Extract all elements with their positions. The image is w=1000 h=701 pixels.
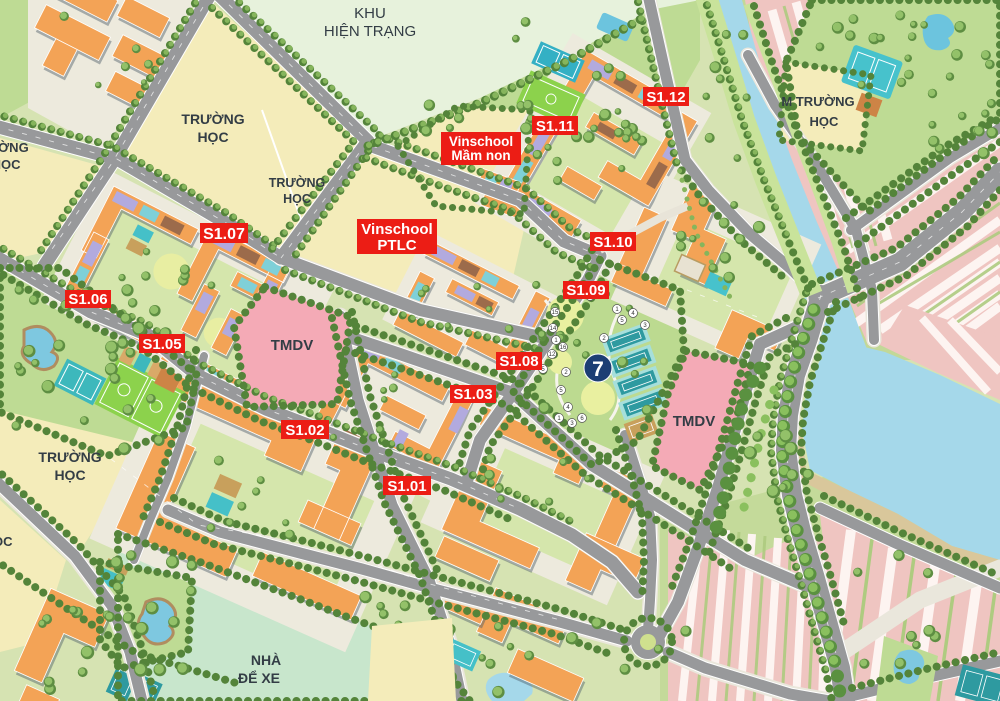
svg-text:HỌC: HỌC: [0, 157, 21, 172]
svg-text:ĐỂ XE: ĐỂ XE: [238, 669, 280, 686]
svg-text:S1.12: S1.12: [646, 89, 685, 106]
svg-text:TMDV: TMDV: [271, 337, 314, 354]
svg-text:HỌC: HỌC: [283, 192, 311, 206]
svg-text:12: 12: [549, 352, 556, 358]
svg-text:NHÀ: NHÀ: [251, 652, 281, 668]
svg-text:TRƯỜNG: TRƯỜNG: [181, 110, 244, 127]
svg-text:HỌC: HỌC: [810, 114, 840, 129]
svg-text:15: 15: [552, 310, 559, 316]
svg-text:S1.10: S1.10: [593, 234, 632, 251]
svg-text:ƯỜNG: ƯỜNG: [0, 140, 29, 155]
svg-text:KHU: KHU: [354, 5, 386, 22]
svg-text:M TRƯỜNG: M TRƯỜNG: [781, 94, 854, 109]
svg-text:TMDV: TMDV: [673, 413, 716, 430]
svg-text:S1.07: S1.07: [203, 226, 245, 243]
svg-text:S1.05: S1.05: [142, 336, 181, 353]
svg-text:Vinschool: Vinschool: [361, 221, 432, 238]
svg-text:S1.02: S1.02: [285, 422, 324, 439]
svg-text:S1.06: S1.06: [68, 291, 107, 308]
svg-text:HỌC: HỌC: [197, 129, 228, 145]
svg-text:S1.03: S1.03: [453, 386, 492, 403]
svg-text:TRƯỜNG: TRƯỜNG: [269, 175, 325, 190]
svg-text:S1.01: S1.01: [387, 478, 426, 495]
svg-text:HỌC: HỌC: [54, 467, 85, 483]
svg-text:7: 7: [592, 358, 604, 381]
svg-text:Mầm non: Mầm non: [451, 148, 510, 163]
svg-text:S1.08: S1.08: [499, 353, 538, 370]
svg-text:HIỆN TRẠNG: HIỆN TRẠNG: [324, 23, 416, 40]
svg-text:HỌC: HỌC: [0, 534, 13, 549]
svg-text:14: 14: [550, 326, 557, 332]
svg-text:S1.09: S1.09: [566, 282, 605, 299]
svg-text:S1.11: S1.11: [536, 118, 574, 135]
svg-text:TRƯỜNG: TRƯỜNG: [38, 448, 101, 465]
svg-text:PTLC: PTLC: [377, 237, 416, 254]
svg-text:Vinschool: Vinschool: [449, 134, 513, 149]
svg-text:16: 16: [560, 345, 567, 351]
